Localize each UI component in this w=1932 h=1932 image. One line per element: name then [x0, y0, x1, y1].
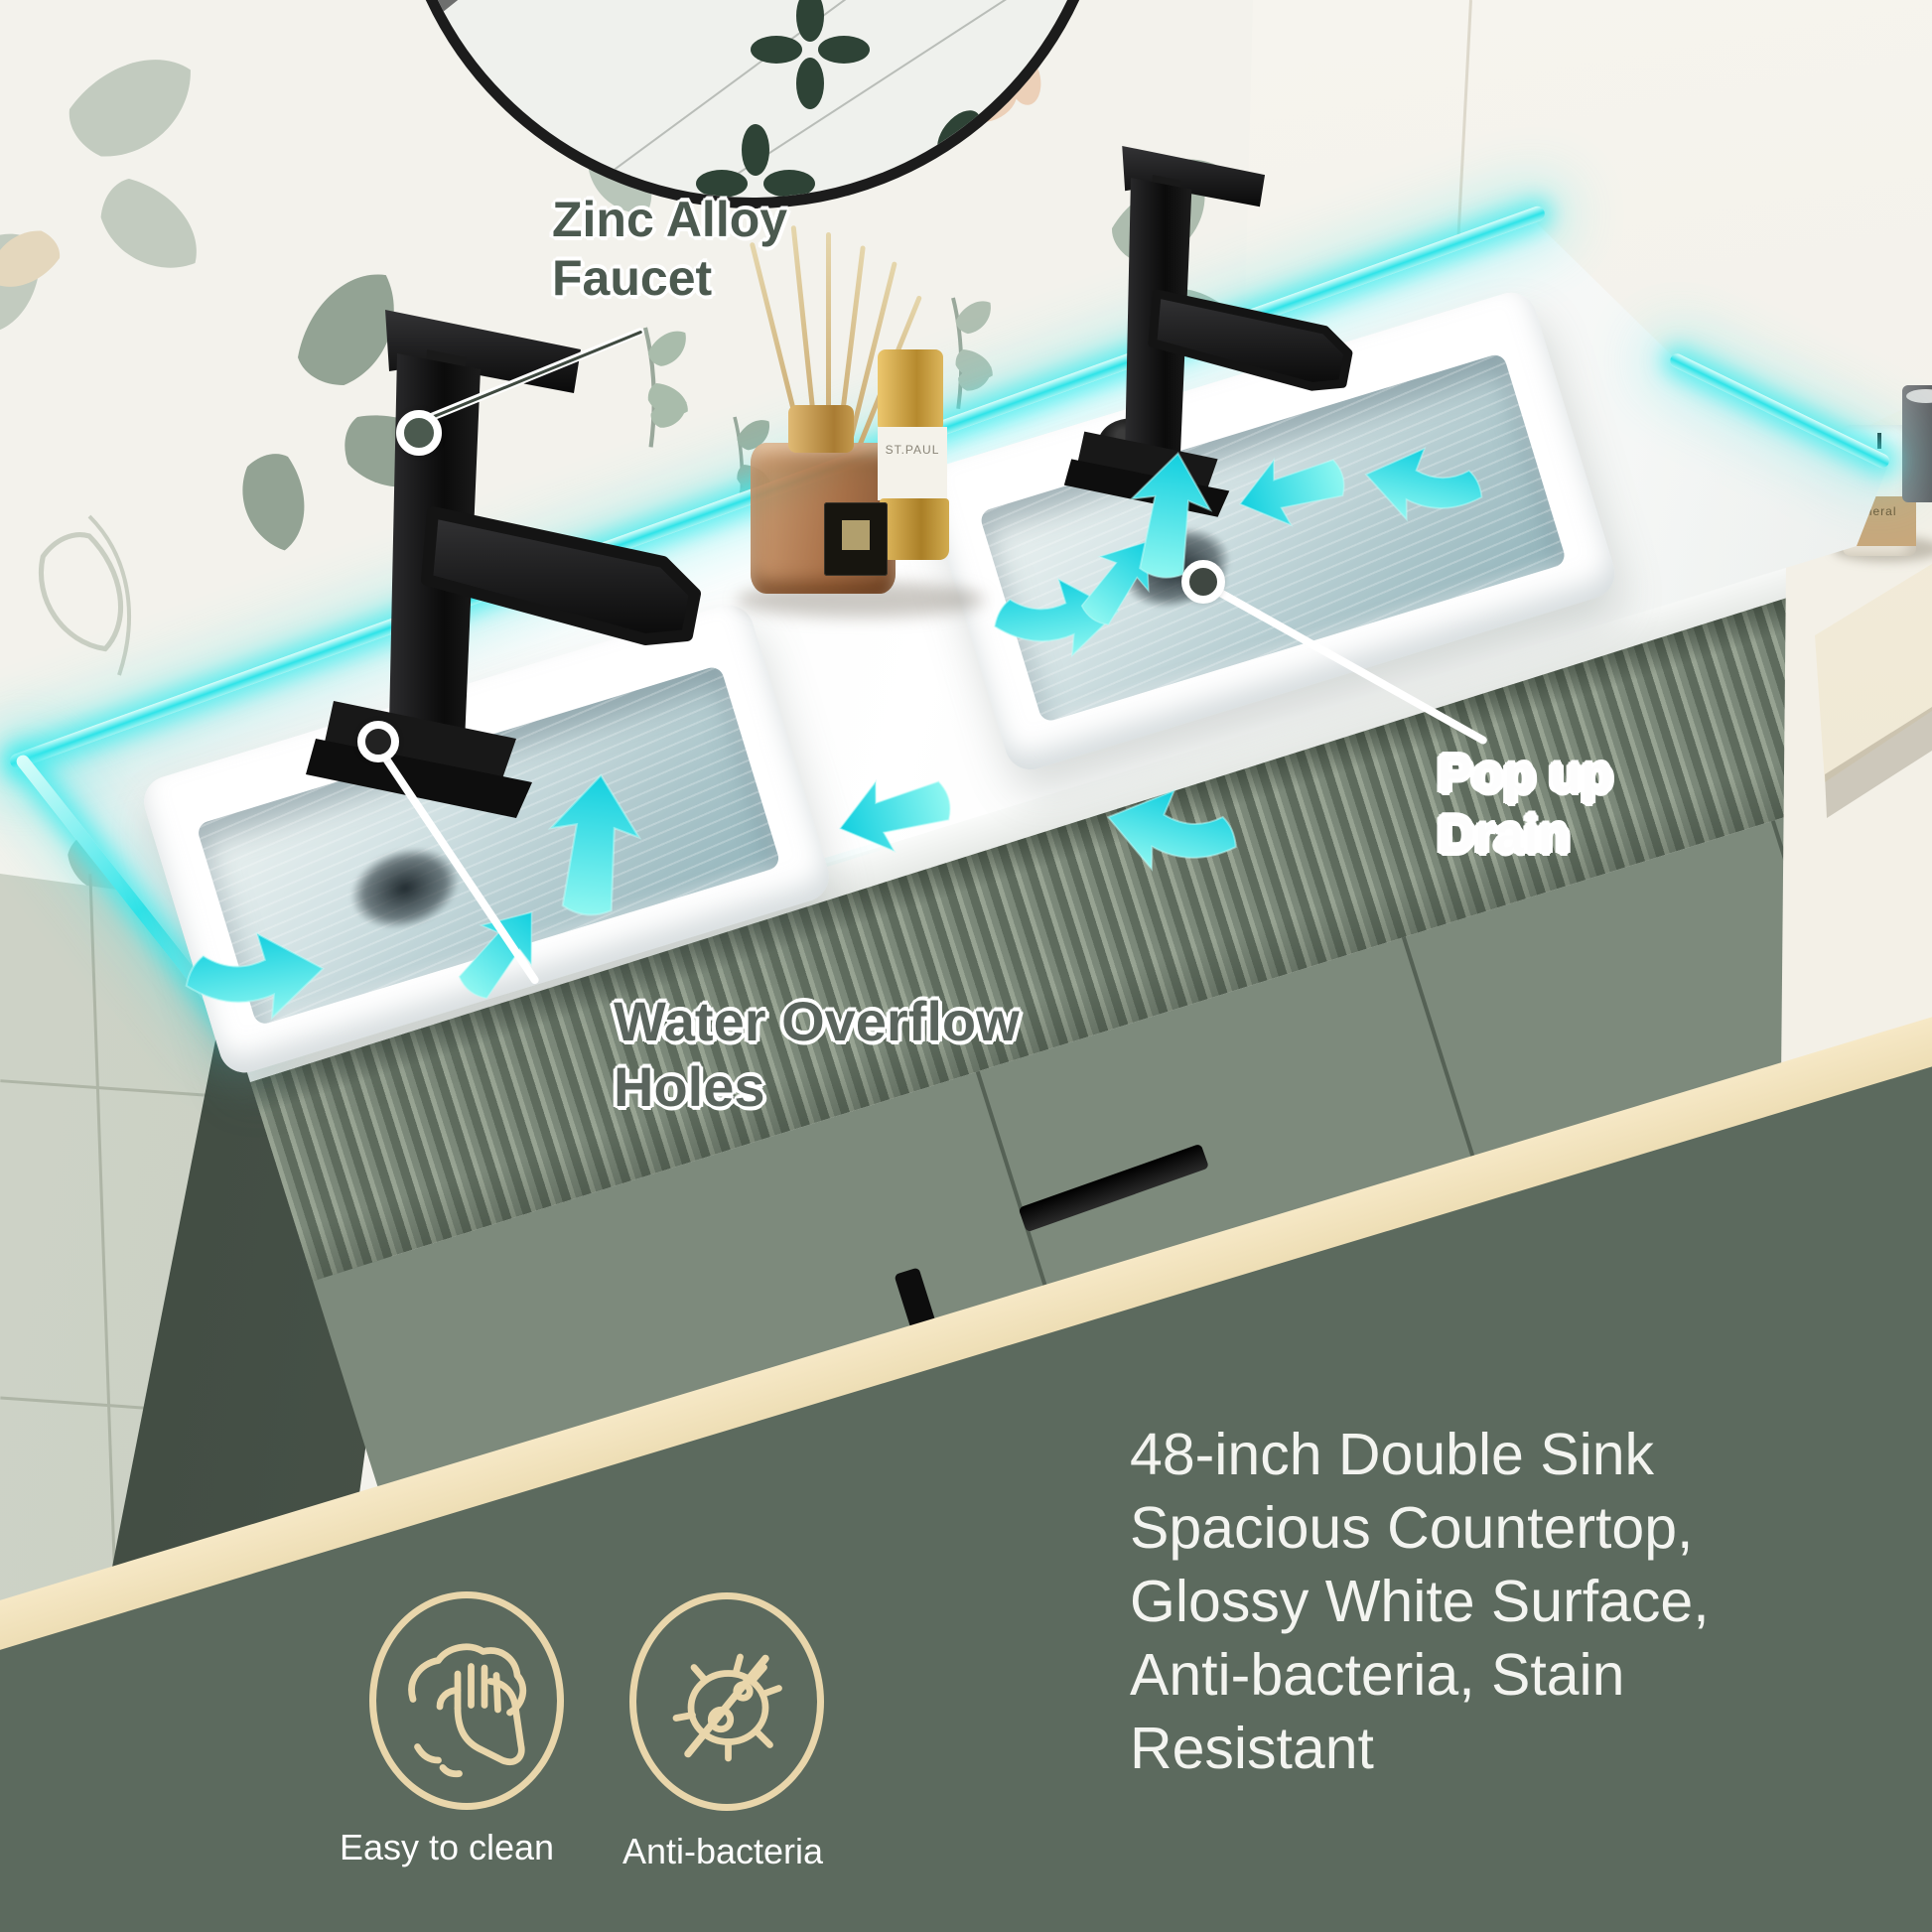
no-bacteria-icon — [652, 1616, 801, 1787]
callout-zinc-alloy-faucet: Zinc Alloy Faucet — [552, 191, 787, 308]
anti-bacteria-badge — [629, 1592, 824, 1811]
easy-to-clean-badge — [369, 1591, 564, 1810]
hand-wipe-icon — [392, 1615, 541, 1786]
feature-label-anti-bacteria: Anti-bacteria — [564, 1831, 882, 1872]
callout-pop-up-drain: Pop up Drain — [1438, 745, 1612, 867]
drain-callout-marker — [1181, 560, 1225, 604]
callout-water-overflow-holes: Water Overflow Holes — [614, 989, 1020, 1120]
product-description: 48-inch Double Sink Spacious Countertop,… — [1130, 1418, 1924, 1785]
faucet-callout-marker — [396, 410, 442, 456]
feature-label-easy-clean: Easy to clean — [288, 1827, 606, 1868]
overflow-callout-marker — [357, 721, 399, 762]
product-screenshot: meral ST.PAUL — [0, 0, 1932, 1932]
